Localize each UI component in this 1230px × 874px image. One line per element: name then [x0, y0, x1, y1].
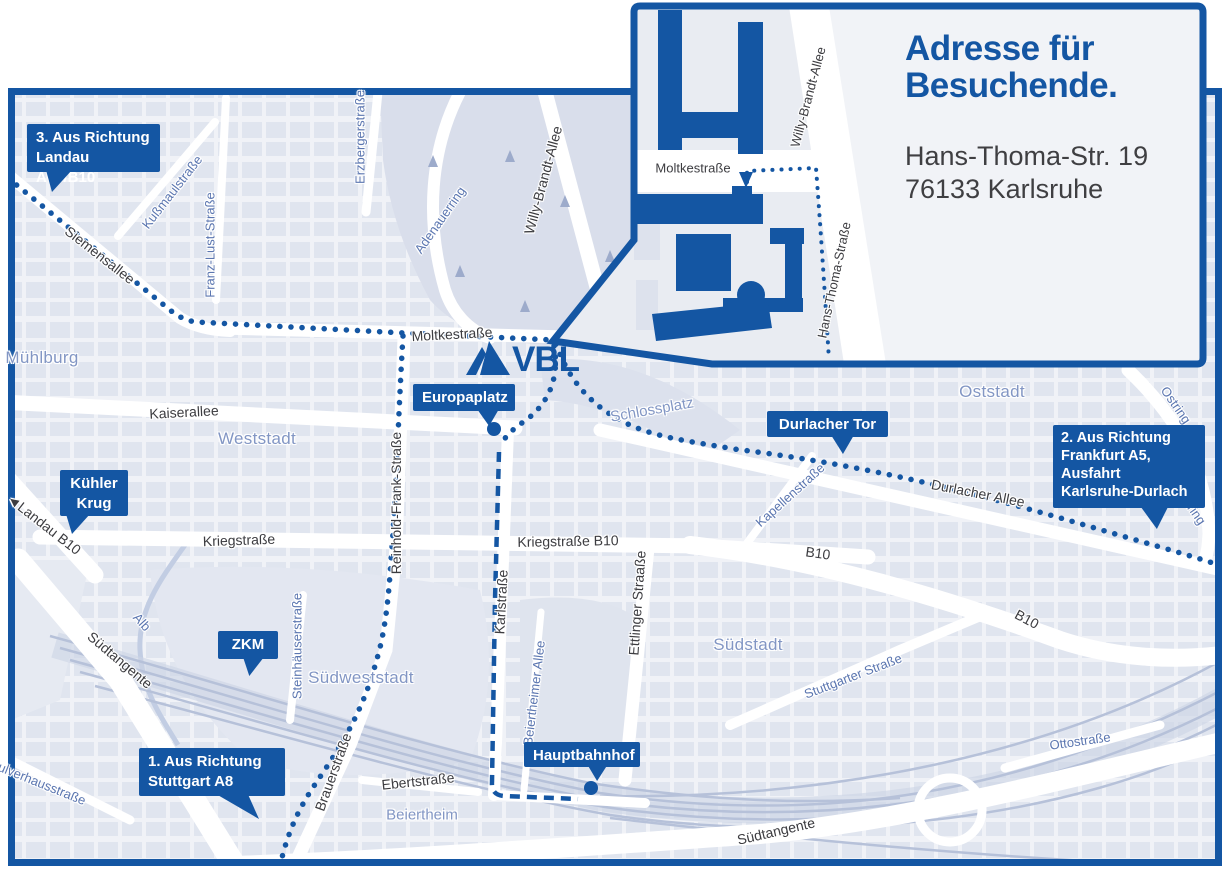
- callout-route-3-landau-line: 3. Aus Richtung: [36, 128, 151, 148]
- callout-hauptbahnhof-line: Hauptbahnhof: [533, 746, 631, 766]
- hauptbahnhof-marker-dot: [584, 781, 598, 795]
- inset-title-line1: Adresse für: [905, 30, 1117, 67]
- inset-moltkestrasse-road: [634, 150, 826, 192]
- inset-address-street: Hans-Thoma-Str. 19: [905, 140, 1148, 173]
- callout-route-2-frankfurt-line: Frankfurt A5,: [1061, 447, 1197, 465]
- anfahrt-map-page: SiemensalleeMoltkestraßeKaiseralleeKrieg…: [0, 0, 1230, 874]
- callout-durlacher-tor: Durlacher Tor: [767, 411, 888, 437]
- callout-zkm-line: ZKM: [227, 635, 269, 655]
- vbl-pyramid-icon: [466, 339, 510, 377]
- callout-route-1-stuttgart-line: 1. Aus Richtung: [148, 752, 276, 772]
- callout-route-3-landau: 3. Aus RichtungLandau A65/B10: [27, 124, 160, 172]
- callout-route-1-stuttgart: 1. Aus RichtungStuttgart A8: [139, 748, 285, 796]
- inset-title-line2: Besuchende.: [905, 67, 1117, 104]
- callout-route-2-frankfurt: 2. Aus RichtungFrankfurt A5,AusfahrtKarl…: [1053, 425, 1205, 508]
- vbl-logo-text: VBL: [512, 343, 579, 377]
- callout-route-1-stuttgart-line: Stuttgart A8: [148, 772, 276, 792]
- callout-kuehler-krug-line: Kühler: [69, 474, 119, 494]
- callout-hauptbahnhof: Hauptbahnhof: [524, 742, 640, 767]
- inset-address: Hans-Thoma-Str. 19 76133 Karlsruhe: [905, 140, 1148, 206]
- inset-title: Adresse für Besuchende.: [905, 30, 1117, 104]
- callout-europaplatz: Europaplatz: [413, 384, 515, 411]
- callout-kuehler-krug-line: Krug: [69, 494, 119, 514]
- callout-kuehler-krug: KühlerKrug: [60, 470, 128, 516]
- callout-durlacher-tor-line: Durlacher Tor: [776, 415, 879, 435]
- inset-address-city: 76133 Karlsruhe: [905, 173, 1148, 206]
- callout-route-2-frankfurt-line: 2. Aus Richtung: [1061, 429, 1197, 447]
- callout-zkm: ZKM: [218, 631, 278, 659]
- vbl-logo: VBL: [466, 339, 579, 377]
- callout-route-2-frankfurt-line: Karlsruhe-Durlach: [1061, 483, 1197, 501]
- callout-route-2-frankfurt-line: Ausfahrt: [1061, 465, 1197, 483]
- callout-europaplatz-line: Europaplatz: [422, 388, 506, 408]
